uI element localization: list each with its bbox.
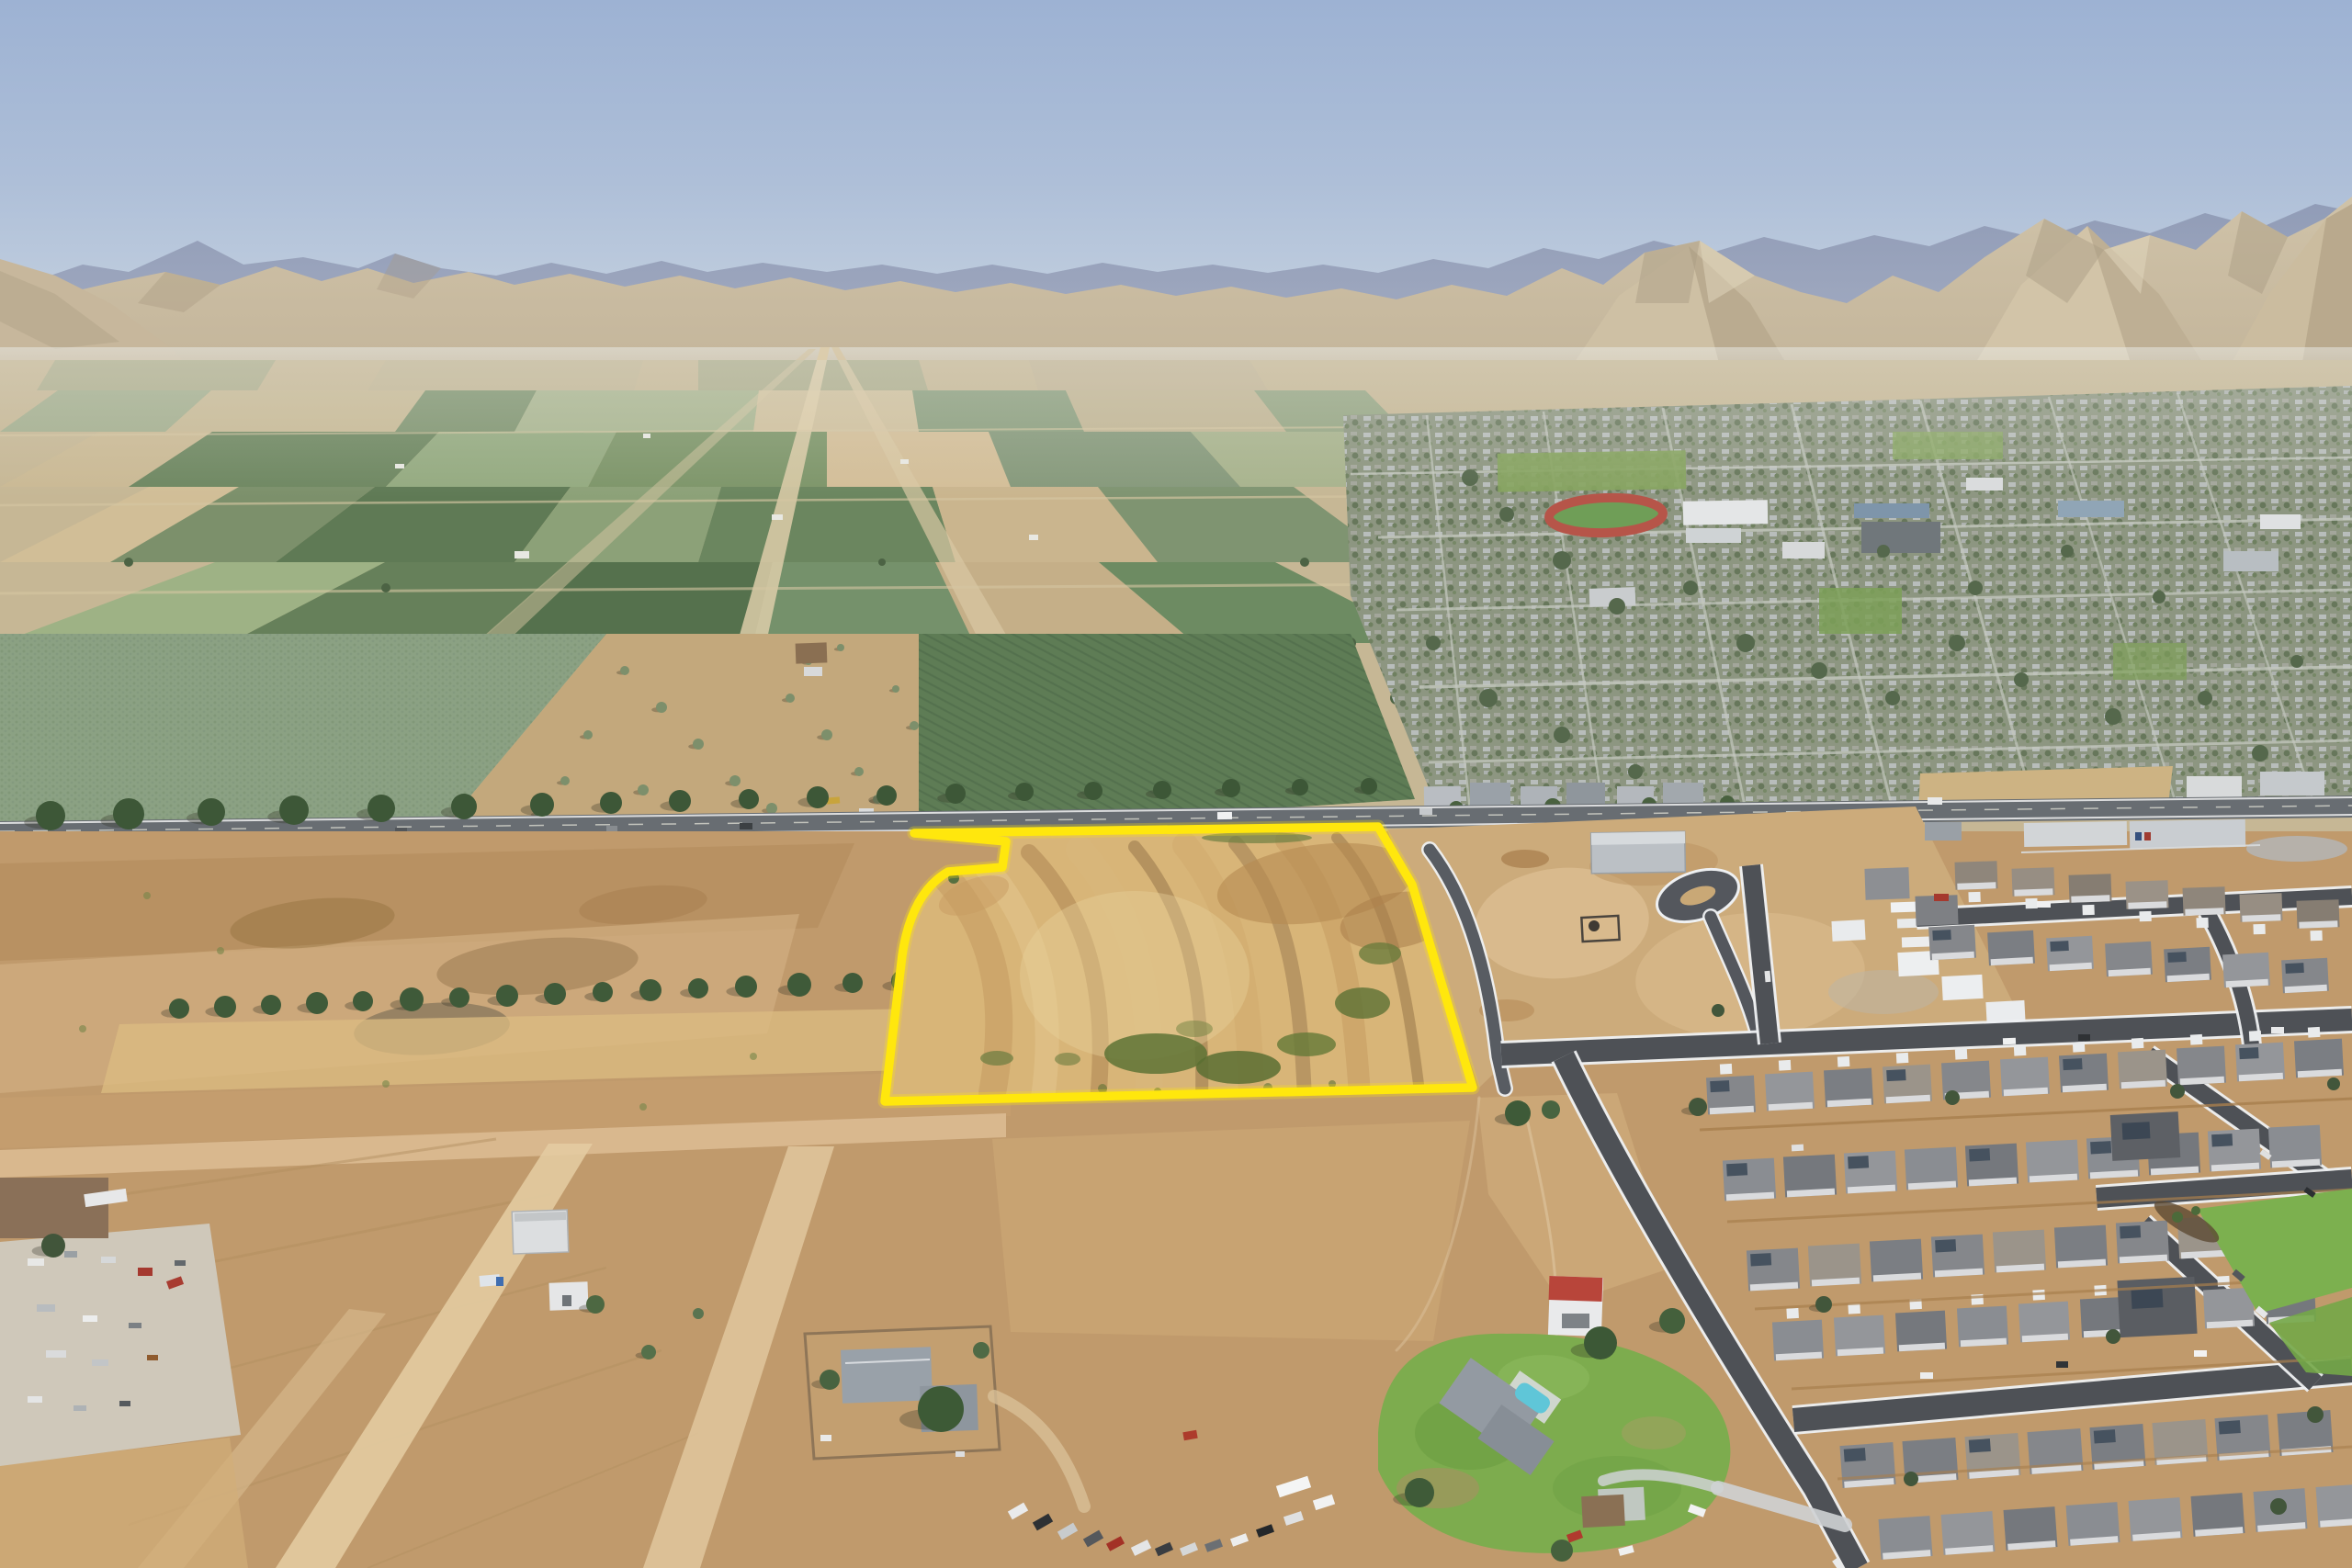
car [2056,1361,2068,1368]
house [1993,1230,2046,1273]
olive-trees-item [854,767,864,776]
sheds-item [496,1277,503,1286]
car [740,823,752,829]
junk-yard-item [64,1251,77,1258]
verge-trees-item [1084,782,1102,800]
town-landmarks-item [1628,764,1643,779]
house [2026,1140,2079,1183]
subdivision-item [2307,1406,2324,1423]
construction-details-item [2246,836,2347,862]
tree-row-item [735,976,757,998]
house [1723,1158,1776,1201]
subdivision-item [2170,1084,2185,1099]
lawn-property-item [1562,1314,1589,1328]
house [2129,1497,2183,1541]
tree-row-item [400,987,424,1011]
house [1864,867,1909,900]
sheds-item [586,1295,605,1314]
olive-trees-item [910,721,919,730]
house [2046,936,2094,972]
verge-trees-item [367,795,395,822]
town-landmarks-item [1811,662,1827,679]
olive-trees-item [583,730,593,739]
house [2191,1493,2245,1537]
junk-yard-item [73,1405,86,1411]
field-details-item [1300,558,1309,567]
brown-shed [1581,1495,1625,1528]
verge-trees-item [807,786,829,808]
town-landmarks-item [2061,545,2074,558]
car [1792,1145,1804,1152]
verge-trees-item [600,792,622,814]
verge-trees-item [451,794,477,819]
tree-row-item [496,985,518,1007]
house [2222,953,2270,988]
verge-trees-item [669,790,691,812]
farmstead-item [973,1342,989,1359]
concrete-pad [1941,975,1983,1000]
tree-row-item [261,995,281,1015]
subdivision-item [2191,1206,2200,1215]
dirt-overlays-item [79,1025,86,1032]
parcel-weeds-item [980,1051,1013,1066]
town-landmarks-item [1479,689,1498,707]
house [2054,1225,2108,1269]
verge-trees-item [1015,783,1034,801]
verge-trees-item [739,789,759,809]
town-landmarks-item [2260,514,2301,529]
field-patches-item [753,562,974,643]
town-landmarks-item [1554,727,1570,743]
red-truck [1934,894,1949,901]
house [1965,1144,2018,1187]
house [1839,1442,1895,1488]
junk-yard-item [28,1258,44,1266]
car [2194,1350,2207,1357]
house [1941,1511,1996,1555]
junk-yard-item [147,1355,158,1360]
dirt-overlays-item [217,947,224,954]
olive-trees-item [729,775,741,786]
tree-row-item [544,983,566,1005]
olive-trees-item [560,776,570,785]
aerial-photo-canvas [0,0,2352,1568]
subdivision-item [2327,1077,2340,1090]
tree-row-item [593,982,613,1002]
subdivision-item [1904,1472,1918,1486]
parcel-weeds-item [1335,987,1390,1019]
house [2164,947,2211,983]
dirt-overlays-item [382,1080,390,1088]
town-landmarks-item [1426,636,1441,650]
dirt-overlays-item [750,1053,757,1060]
subdivision-item [2122,1122,2151,1140]
town-landmarks-item [2058,501,2124,517]
town-landmarks-item [1861,522,1940,553]
dirt-overlays-item [992,1121,1470,1341]
field-details-item [124,558,133,567]
farmstead-item [820,1435,831,1441]
construction-details-item [1828,970,1939,1014]
metal-building [1925,822,1962,840]
town-landmarks-item [1968,581,1983,595]
olive-trees-item [892,685,899,693]
tree-row-item [306,992,328,1014]
olive-trees-item [766,803,777,814]
town-landmarks-item [1885,691,1900,705]
town-landmarks-item [1566,783,1605,807]
town-landmarks-item [2252,745,2268,761]
house [2281,958,2329,994]
town-landmarks-item [2113,643,2187,680]
tree-row-item [639,979,661,1001]
house [2105,942,2153,977]
olive-trees-item [821,729,832,740]
house [1747,1248,1800,1292]
construction-details-item [1501,850,1549,868]
field-details-item [1029,535,1038,540]
citrus-orchard-rows [919,634,1415,831]
olive-trees-item [638,784,649,795]
trailer [1891,901,1918,912]
town-landmarks-item [2105,708,2121,725]
town-landmarks-item [2198,691,2212,705]
parcel-weeds-item [1277,1032,1336,1056]
house [1879,1516,1933,1560]
subdivision-item [2172,1212,2183,1223]
concrete-pad [1831,919,1865,942]
verge-trees-item [1222,779,1240,797]
trailer [1902,936,1929,947]
subdivision-item [2106,1329,2120,1344]
construction-details-item [2144,832,2151,840]
house [2116,1221,2169,1264]
junk-yard-item [175,1260,186,1266]
subdivision-item [2270,1498,2287,1515]
house [2316,1483,2352,1528]
car [2037,901,2051,908]
town-landmarks-item [1683,581,1698,595]
junk-yard-item [129,1323,141,1328]
house-roof [0,1178,108,1238]
subdivision-item [1712,1004,1724,1017]
junk-yard-item [92,1359,108,1366]
car [1419,808,1432,815]
town-landmarks-item [2153,591,2165,604]
house [1808,1244,1861,1287]
house [2208,1129,2261,1172]
parcel-texture-item [1020,891,1249,1060]
field-details-item [878,558,886,566]
town-landmarks-item [2290,655,2303,668]
farmstead-item [918,1386,964,1432]
commercial-building [2024,821,2127,847]
tree-row-item [842,973,863,993]
verge-trees-item [1361,778,1377,795]
parcel-weeds-item [1359,942,1401,964]
aerial-photo [0,0,2352,1568]
car [1920,1372,1933,1379]
construction-details-item [1591,831,1685,845]
field-details-item [381,583,390,592]
tree-row-item [169,998,189,1019]
tree-row-item [688,978,708,998]
house [2268,1125,2322,1168]
olive-trees-item [620,666,629,675]
house [1928,925,1976,961]
lawn-property-item [1405,1478,1434,1507]
lawn-property-item [1584,1326,1617,1359]
house [1870,1239,1923,1282]
house [1783,1155,1837,1198]
parcel-weeds-item [1055,1053,1080,1066]
field-details-item [772,514,783,520]
sheds-item [693,1308,704,1319]
olive-trees-item [837,644,844,651]
construction-details-item [2135,832,2142,840]
verge-trees-item [113,798,144,829]
verge-trees-item [945,784,966,804]
dirt-overlays-item [639,1103,647,1111]
house [1987,931,2035,966]
dirt-overlays-item [143,892,151,899]
running-track [1548,496,1663,535]
farmstead-item [820,1370,840,1390]
subdivision-item [1945,1090,1960,1105]
lawn-property-item [1542,1100,1560,1119]
house [2066,1502,2120,1546]
subdivision-item [2131,1289,2164,1309]
lawn-property-item [1551,1540,1573,1562]
construction-details-item [1589,920,1600,931]
lawn-property-item [1622,1416,1686,1450]
verge-trees-item [1153,781,1171,799]
car [606,826,617,831]
valley-haze [0,360,2352,498]
house [1905,1147,1958,1190]
junk-yard-item [119,1401,130,1406]
school-building [1683,500,1768,525]
car [1764,971,1770,982]
sheds-item [641,1345,656,1359]
tree-row-item [214,996,236,1018]
town-landmarks-item [1736,634,1755,652]
lawn-property-item [1659,1308,1685,1334]
subdivision-item [1815,1296,1832,1313]
parcel-weeds-item [1104,1033,1207,1074]
town-landmarks-item [1819,588,1902,634]
verge-trees-item [198,798,225,826]
farmhouse-roof [841,1347,933,1403]
town-landmarks-item [1949,635,1965,651]
car [2078,1034,2090,1041]
town-landmarks-item [2260,772,2324,795]
olive-trees-item [786,694,795,703]
barn-red-roof [1549,1276,1603,1302]
parcel-weeds-item [1176,1021,1213,1037]
junk-yard-item [41,1234,65,1258]
car [2271,1027,2284,1033]
car [1928,797,1942,805]
olive-trees-item [656,702,667,713]
olive-trees-item [796,642,828,663]
tree-row-item [787,973,811,997]
junk-yard-item [37,1304,55,1312]
junk-yard-item [101,1257,116,1263]
town-landmarks-item [1854,503,1929,518]
field-details-item [514,551,529,558]
house [1844,1151,1897,1194]
town-landmarks-item [1470,783,1510,808]
junk-yard-item [46,1350,66,1358]
town-landmarks-item [1609,598,1625,615]
tree-row-item [353,991,373,1011]
car [2003,1038,2016,1044]
parcel-weeds-item [1196,1051,1281,1084]
listed-parcel [885,827,1473,1101]
verge-trees-item [36,801,65,830]
town-landmarks-item [1877,545,1890,558]
town-landmarks-item [2223,551,2278,571]
subdivision-item [1689,1098,1707,1116]
sheds-item [562,1295,571,1306]
verge-trees-item [279,795,309,825]
junk-yard-item [83,1315,97,1322]
house [2004,1506,2058,1551]
junk-yard-item [138,1268,153,1276]
town-landmarks-item [1553,551,1571,570]
verge-trees-item [530,793,554,817]
lawn-property-item [1505,1100,1531,1126]
town-landmarks-item [1499,507,1514,522]
town-landmarks-item [1686,528,1741,543]
town-landmarks-item [2187,776,2242,798]
car [1217,812,1232,819]
tree-row-item [449,987,469,1008]
house [1964,1433,2020,1479]
verge-trees-item [876,785,897,806]
verge-trees-item [1292,779,1308,795]
olive-trees-item [693,739,704,750]
town-landmarks-item [1782,542,1825,558]
farmstead-item [955,1451,965,1457]
olive-trees-item [804,667,822,676]
junk-yard-item [28,1396,42,1403]
town-landmarks-item [2014,672,2029,687]
house [1931,1235,1984,1278]
